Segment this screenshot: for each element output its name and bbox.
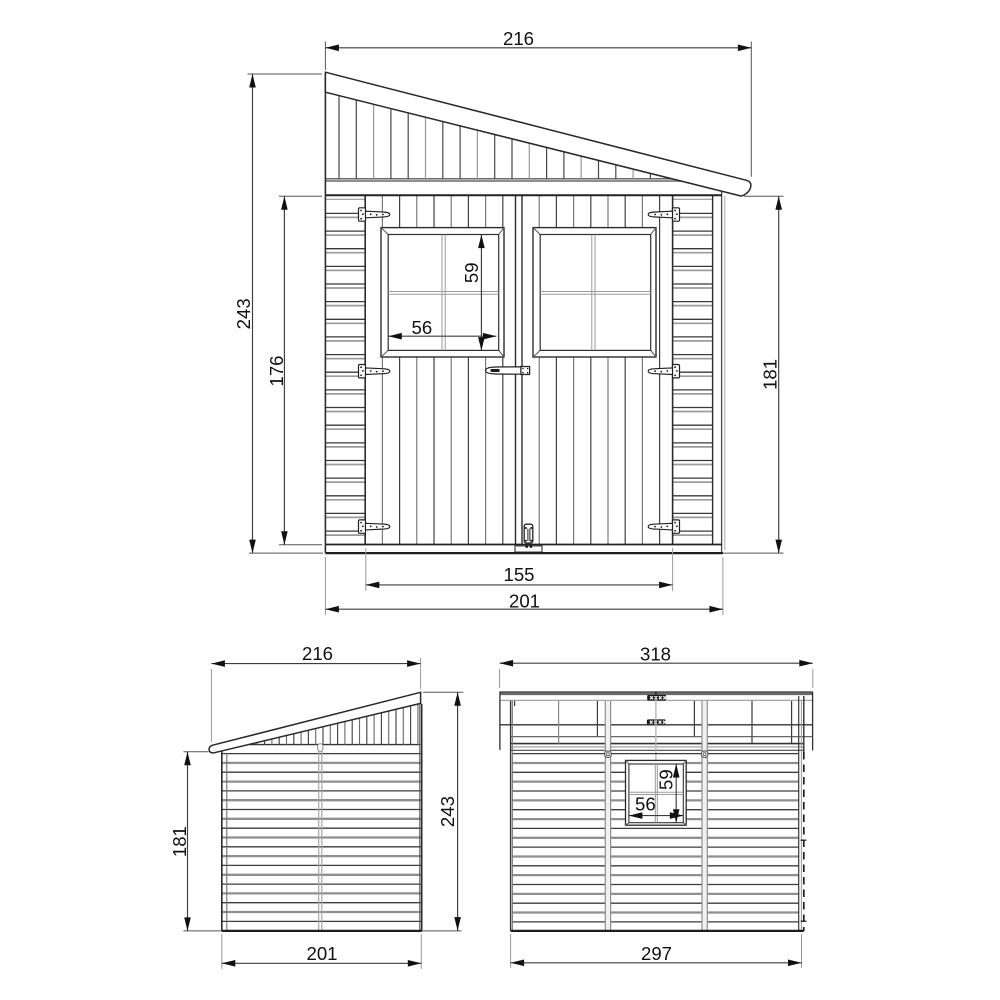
svg-text:155: 155 [503,564,534,585]
svg-text:59: 59 [656,769,677,790]
svg-text:201: 201 [509,591,540,612]
svg-text:56: 56 [635,794,656,815]
svg-text:59: 59 [461,262,482,283]
svg-text:216: 216 [503,28,534,49]
svg-text:201: 201 [306,943,337,964]
svg-text:318: 318 [640,643,671,664]
svg-text:297: 297 [641,943,672,964]
svg-text:243: 243 [233,298,254,329]
svg-text:181: 181 [760,359,781,390]
svg-text:216: 216 [302,643,333,664]
svg-text:243: 243 [437,796,458,827]
svg-text:176: 176 [266,355,287,386]
svg-text:56: 56 [412,317,433,338]
svg-text:181: 181 [169,826,190,857]
